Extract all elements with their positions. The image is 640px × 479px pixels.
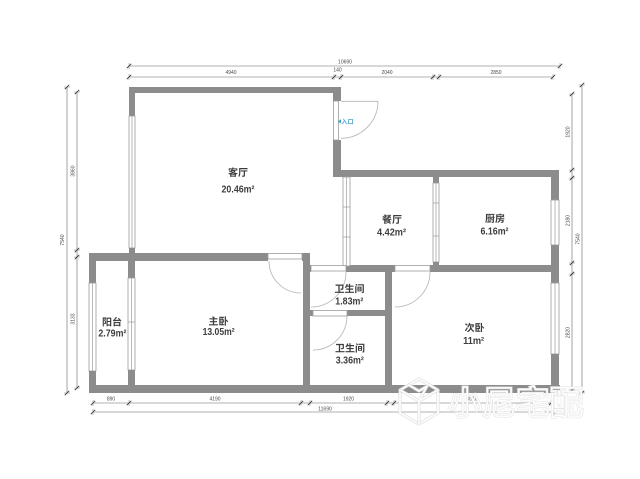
svg-text:2180: 2180 xyxy=(566,215,572,226)
svg-text:890: 890 xyxy=(107,397,116,403)
svg-text:2850: 2850 xyxy=(490,70,501,76)
svg-text:3860: 3860 xyxy=(71,165,77,176)
svg-text:140: 140 xyxy=(333,68,342,74)
svg-text:7540: 7540 xyxy=(576,233,582,244)
svg-text:2.79m²: 2.79m² xyxy=(98,329,127,340)
svg-text:20.46m²: 20.46m² xyxy=(222,185,256,196)
svg-text:4.42m²: 4.42m² xyxy=(377,228,407,239)
svg-text:7540: 7540 xyxy=(60,234,66,245)
svg-text:6.16m²: 6.16m² xyxy=(481,227,510,238)
svg-text:2040: 2040 xyxy=(381,70,392,76)
svg-text:4940: 4940 xyxy=(225,70,236,76)
svg-text:4190: 4190 xyxy=(209,397,220,403)
svg-text:11m²: 11m² xyxy=(463,336,485,347)
svg-text:3133: 3133 xyxy=(71,313,77,324)
svg-text:1920: 1920 xyxy=(566,126,572,137)
svg-text:3.36m²: 3.36m² xyxy=(336,355,365,366)
svg-text:2820: 2820 xyxy=(566,327,572,338)
svg-text:1920: 1920 xyxy=(343,397,354,403)
svg-text:11690: 11690 xyxy=(318,407,332,413)
svg-text:10690: 10690 xyxy=(338,60,352,66)
svg-text:1.83m²: 1.83m² xyxy=(335,297,364,308)
svg-text:13.05m²: 13.05m² xyxy=(203,327,236,338)
